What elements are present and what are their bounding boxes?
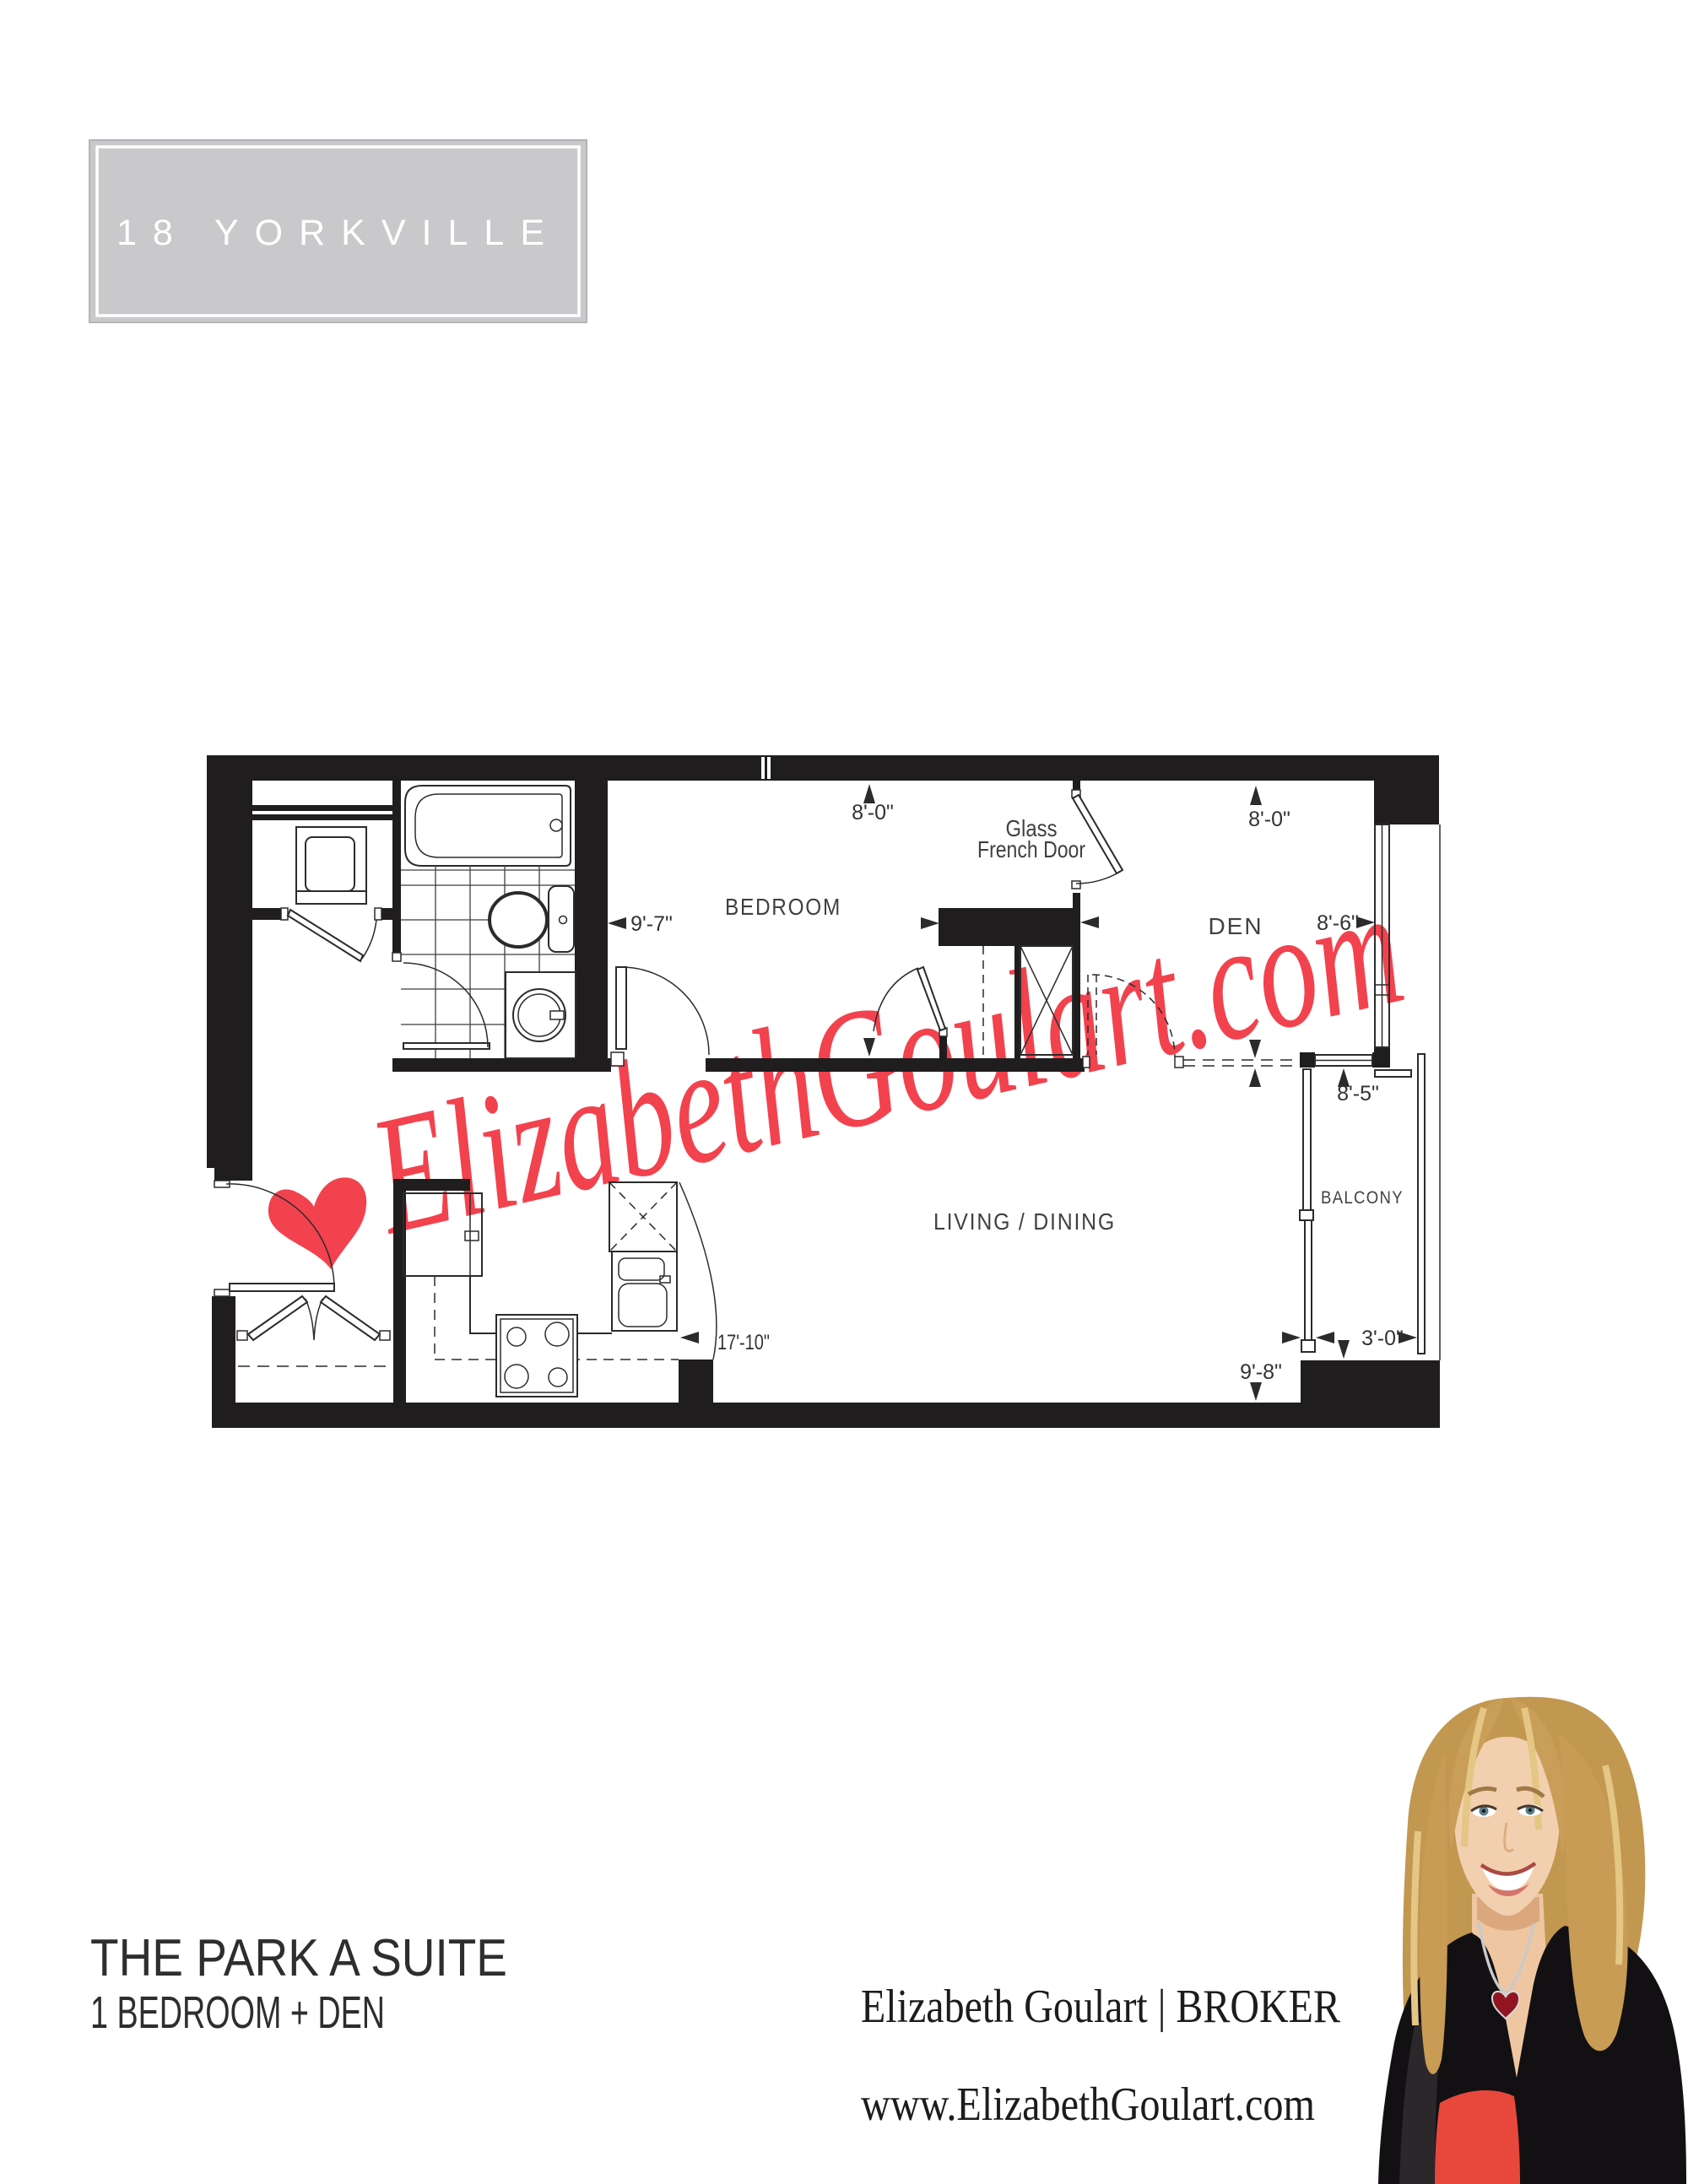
svg-text:18 YORKVILLE: 18 YORKVILLE bbox=[116, 213, 561, 253]
svg-text:Elizabeth Goulart | BROKER: Elizabeth Goulart | BROKER bbox=[861, 1981, 1341, 2033]
svg-text:BEDROOM: BEDROOM bbox=[725, 894, 841, 920]
svg-text:www.ElizabethGoulart.com: www.ElizabethGoulart.com bbox=[861, 2079, 1315, 2131]
svg-text:8'-0": 8'-0" bbox=[1248, 808, 1290, 831]
svg-text:1 BEDROOM + DEN: 1 BEDROOM + DEN bbox=[90, 1987, 385, 2038]
svg-text:9'-8": 9'-8" bbox=[1240, 1360, 1282, 1384]
svg-text:3'-0": 3'-0" bbox=[1361, 1327, 1404, 1350]
svg-text:BALCONY: BALCONY bbox=[1321, 1188, 1404, 1208]
svg-text:THE PARK A SUITE: THE PARK A SUITE bbox=[90, 1929, 507, 1987]
svg-text:DEN: DEN bbox=[1208, 913, 1263, 939]
svg-text:9'-7": 9'-7" bbox=[630, 912, 673, 936]
svg-text:LIVING / DINING: LIVING / DINING bbox=[933, 1208, 1116, 1235]
svg-text:8'-5": 8'-5" bbox=[1337, 1082, 1379, 1106]
svg-text:8'-0": 8'-0" bbox=[852, 801, 894, 824]
svg-text:17'-10": 17'-10" bbox=[717, 1331, 770, 1354]
svg-text:8'-6": 8'-6" bbox=[1317, 911, 1359, 935]
svg-text:French Door: French Door bbox=[977, 836, 1085, 862]
